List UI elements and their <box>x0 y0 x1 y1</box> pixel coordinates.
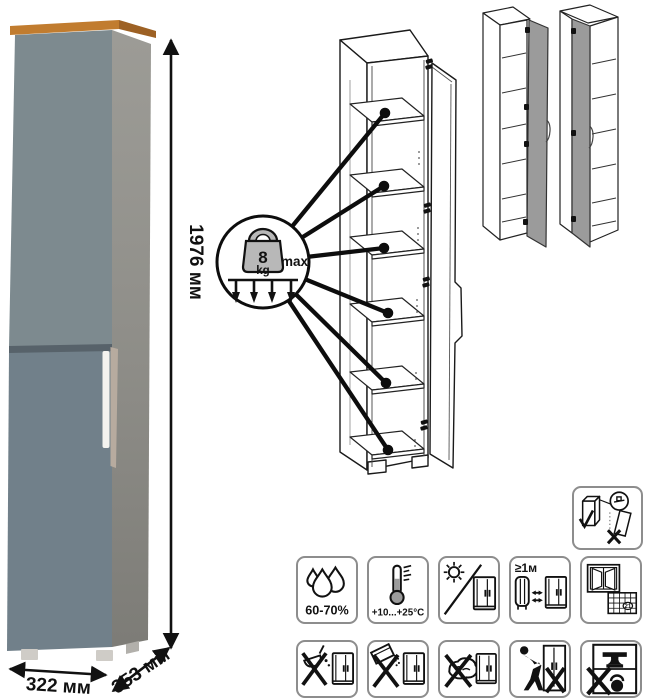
door-handle <box>103 351 110 448</box>
distance-arrows-icon <box>532 590 543 602</box>
no-pushing-icon <box>520 646 565 693</box>
open-cabinet-diagram: 8 kg max <box>205 5 485 500</box>
calendar-day-label: 21 <box>624 603 631 610</box>
no-direct-sunlight-tile <box>438 556 500 624</box>
no-abrasive-powder-tile <box>367 640 429 698</box>
anti-tip-secure-to-wall-icon <box>574 488 641 548</box>
cabinet-icon <box>546 577 567 608</box>
heat-distance-label: ≥1м <box>515 561 537 575</box>
drawing-foot-left <box>368 460 386 474</box>
drawing-foot-right <box>412 455 428 468</box>
max-label: max <box>281 254 309 269</box>
radiator-icon <box>516 577 529 610</box>
no-abrasive-powder-icon <box>371 644 424 687</box>
no-aggressive-liquids-tile <box>296 640 358 698</box>
no-overload-tile <box>580 640 642 698</box>
temperature-label: +10...+25°C <box>372 607 424 618</box>
variant-door-left <box>560 5 618 247</box>
calendar-icon: 21 <box>608 593 636 614</box>
weight-limit-icon: 8 kg max <box>217 216 309 308</box>
no-wet-cloth-icon <box>446 654 496 687</box>
cabinet-icon <box>476 654 496 683</box>
cabinet-icon <box>333 653 353 684</box>
cabinet-photo: 1976 мм 322 мм 353 мм <box>0 0 210 700</box>
person-silhouette <box>523 655 543 690</box>
heat-distance-tile: ≥1м <box>509 556 571 624</box>
cabinet-foot-left <box>21 649 38 660</box>
cabinet-foot-right <box>96 650 113 661</box>
no-direct-sunlight-icon <box>444 562 495 614</box>
no-wet-cloth-tile <box>438 640 500 698</box>
no-overload-icon <box>588 645 636 694</box>
no-pushing-tile <box>509 640 571 698</box>
humidity-tile: 60-70% <box>296 556 358 624</box>
cabinet-door-lower <box>7 349 112 651</box>
side-shading <box>112 30 151 647</box>
depth-dimension-label: 353 мм <box>108 645 174 699</box>
drawing-open-door <box>430 63 462 468</box>
weight-unit-label: kg <box>256 265 269 277</box>
no-aggressive-liquids-icon <box>302 645 353 684</box>
ventilation-calendar-tile: 21 <box>580 556 642 624</box>
cabinet-icon <box>474 577 495 609</box>
cabinet-door-upper <box>9 30 112 348</box>
door-variants-diagram <box>473 3 648 258</box>
height-dimension-label: 1976 мм <box>185 224 206 300</box>
temperature-tile: +10...+25°C <box>367 556 429 624</box>
anti-tip-tile <box>572 486 643 550</box>
window-icon <box>588 565 620 592</box>
product-sheet: 1976 мм 322 мм 353 мм <box>0 0 648 700</box>
humidity-icon <box>307 568 343 597</box>
temperature-icon <box>391 566 412 604</box>
variant-door-right <box>483 7 550 247</box>
cabinet-icon <box>404 653 424 684</box>
width-dimension-arrow <box>10 669 106 675</box>
width-dimension-label: 322 мм <box>25 674 91 699</box>
humidity-label: 60-70% <box>305 603 348 617</box>
